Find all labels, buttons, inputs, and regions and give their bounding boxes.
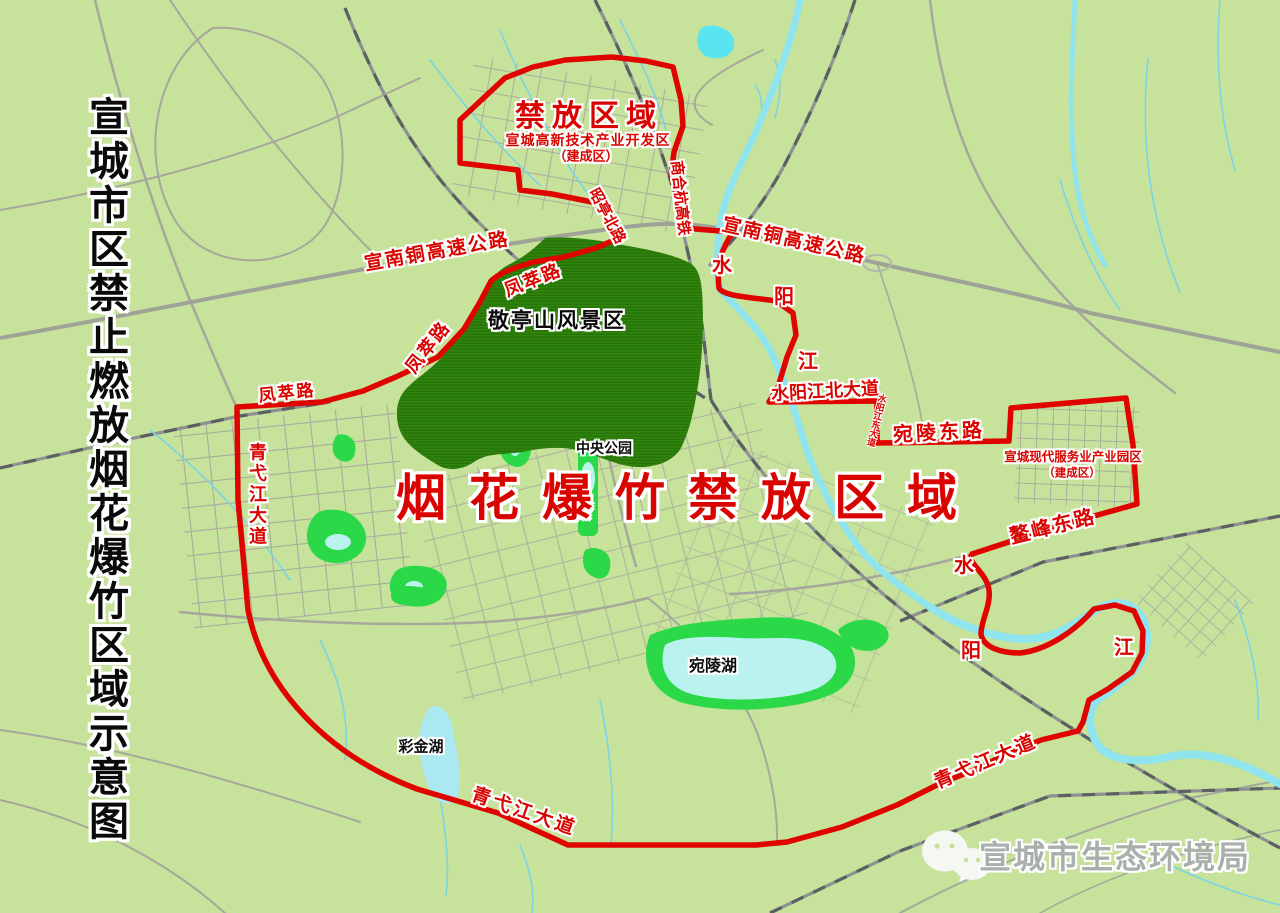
map-canvas: 宣城市区禁止燃放烟花爆竹区域示意图 禁放区域 宣城高新技术产业开发区 （建成区）…	[0, 0, 1280, 913]
basemap-graphics	[0, 0, 1280, 913]
